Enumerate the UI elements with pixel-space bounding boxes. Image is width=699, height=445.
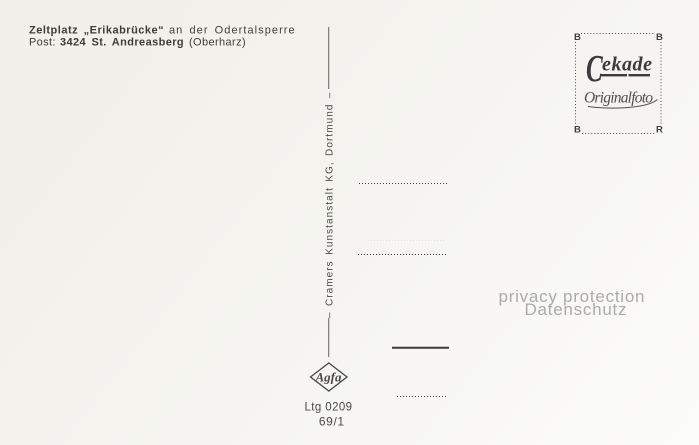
svg-text:Datenschutz: Datenschutz (525, 300, 628, 319)
svg-text:– Cramers Kunstanstalt KG, Dor: – Cramers Kunstanstalt KG, Dortmund – (325, 92, 336, 318)
svg-text:(Oberharz): (Oberharz) (189, 37, 246, 49)
svg-text:Zeltplatz „Erikabrücke“: Zeltplatz „Erikabrücke“ (29, 25, 164, 37)
svg-text:B: B (656, 32, 663, 43)
svg-text:Ltg 0209: Ltg 0209 (305, 402, 353, 414)
svg-text:an der Odertalsperre: an der Odertalsperre (169, 25, 295, 37)
svg-text:R: R (656, 125, 663, 136)
svg-text:3424 St. Andreasberg: 3424 St. Andreasberg (60, 37, 184, 49)
svg-text:69/1: 69/1 (319, 415, 345, 429)
svg-text:Post:: Post: (29, 37, 56, 49)
svg-text:Agfa: Agfa (315, 370, 343, 385)
svg-text:B: B (574, 125, 581, 136)
svg-text:ekade: ekade (602, 54, 652, 76)
svg-text:B: B (574, 32, 581, 43)
svg-text:C: C (586, 47, 603, 89)
svg-text:Originalfoto: Originalfoto (584, 90, 653, 107)
